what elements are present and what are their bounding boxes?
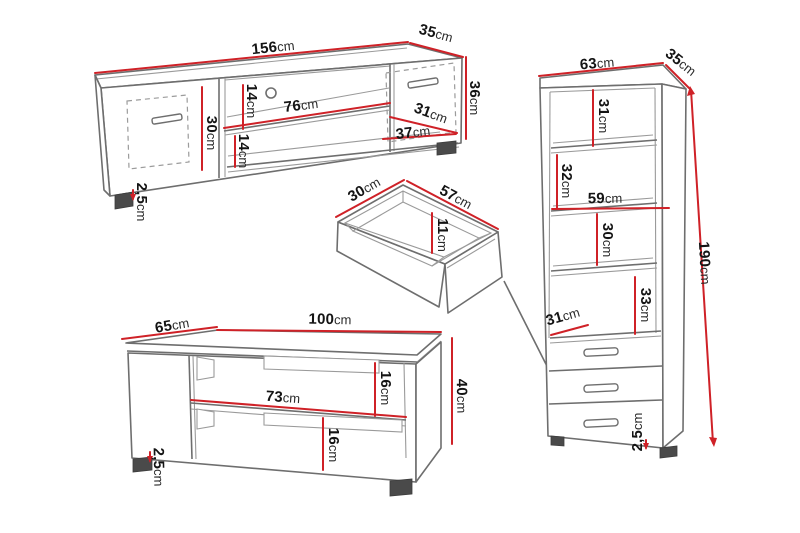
furniture-dimension-diagram: 156cm 35cm 36cm 30cm 14cm 76cm 14cm 31cm… <box>0 0 800 533</box>
cabinet-right-side-face <box>662 84 686 448</box>
tv-stand-upper-shelf-gap-label: 14cm <box>243 84 260 118</box>
tv-stand-height-label: 36cm <box>466 81 483 115</box>
tv-stand-left-door-height-label: 30cm <box>203 116 220 150</box>
tv-stand-width-label: 156cm <box>251 37 296 58</box>
coffee-table-drawing: 65cm 100cm 40cm 16cm 73cm 16cm 2,5cm <box>122 311 470 496</box>
drawer-inner-height-label: 11cm <box>434 218 451 252</box>
cabinet-drawer-handle-2 <box>584 384 618 393</box>
coffee-table-depth-label: 65cm <box>154 314 191 337</box>
cabinet-height-label: 190cm <box>695 241 714 285</box>
coffee-table-upper-left-opening <box>197 357 214 380</box>
diagram-canvas: 156cm 35cm 36cm 30cm 14cm 76cm 14cm 31cm… <box>0 0 800 533</box>
coffee-table-plinth-height-label: 2,5cm <box>150 447 168 486</box>
coffee-table-width-label: 100cm <box>308 311 351 329</box>
cabinet-shelf-width-dimension-line <box>552 208 669 209</box>
tv-stand-depth-label: 35cm <box>417 21 455 46</box>
coffee-table-upper-gap-label: 16cm <box>377 371 394 405</box>
cabinet-drawer-handle-3 <box>584 419 618 428</box>
cabinet-section4-label: 33cm <box>637 288 654 322</box>
cabinet-drawing: 63cm 35cm 31cm 32cm 59cm 30cm 33cm 31cm … <box>539 45 717 458</box>
cabinet-section1-label: 31cm <box>595 99 612 133</box>
cabinet-plinth-height-label: 2,5cm <box>629 413 646 452</box>
cabinet-shelf-width-label: 59cm <box>588 190 623 208</box>
cabinet-height-arrowhead-bottom <box>709 437 717 447</box>
tv-stand-plinth-height-label: 2,5cm <box>133 183 150 222</box>
coffee-table-shelf-width-label: 73cm <box>265 388 301 407</box>
coffee-table-lower-left-opening <box>197 409 214 429</box>
cabinet-right-foot <box>660 446 677 458</box>
cabinet-drawer-handle-1 <box>584 348 618 357</box>
coffee-table-right-side-face <box>416 342 441 482</box>
coffee-table-right-foot <box>390 479 412 496</box>
tv-stand-right-foot <box>437 141 456 155</box>
drawer-drawing: 30cm 57cm 11cm <box>336 173 557 386</box>
cabinet-left-foot <box>551 436 564 446</box>
coffee-table-lower-gap-label: 16cm <box>325 428 342 462</box>
cabinet-section3-label: 30cm <box>599 223 616 257</box>
tv-stand-lower-shelf-gap-label: 14cm <box>235 134 252 168</box>
coffee-table-height-label: 40cm <box>453 379 471 414</box>
cabinet-section2-label: 32cm <box>558 164 575 198</box>
